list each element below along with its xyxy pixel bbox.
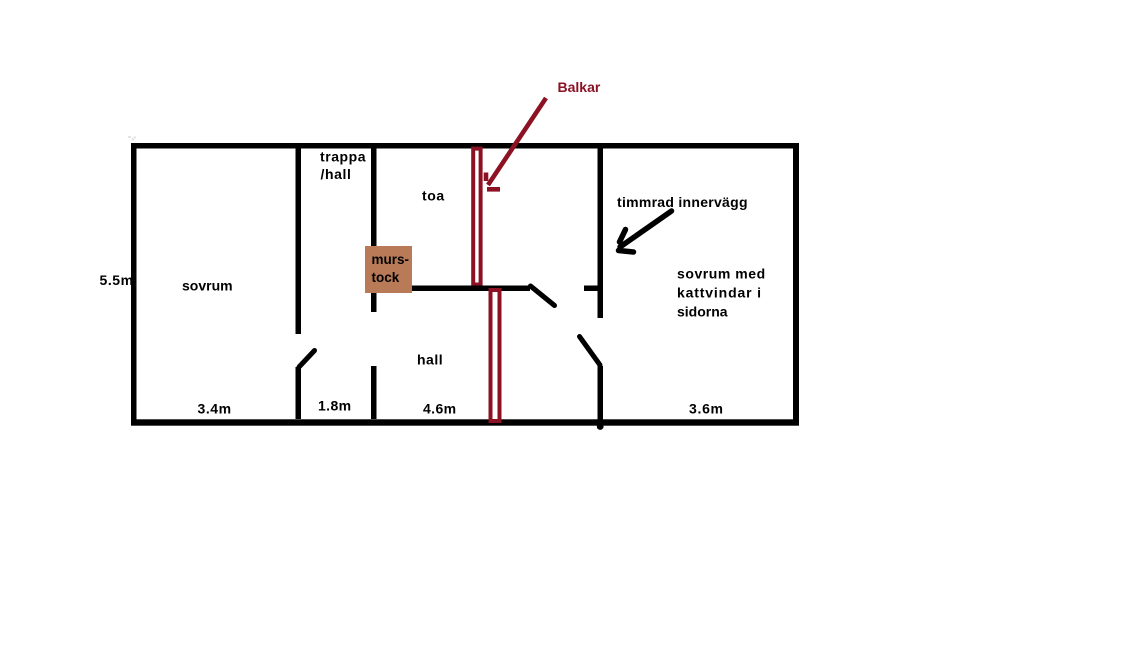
svg-text:sidorna: sidorna xyxy=(677,304,728,320)
svg-text:sovrum med: sovrum med xyxy=(677,266,766,282)
svg-text:3.4m: 3.4m xyxy=(198,401,232,417)
svg-text:5.5m: 5.5m xyxy=(100,272,134,288)
svg-text:tock: tock xyxy=(372,270,400,285)
svg-text:Balkar: Balkar xyxy=(558,79,601,95)
svg-text:murs-: murs- xyxy=(372,252,410,267)
svg-text:timmrad innervägg: timmrad innervägg xyxy=(617,194,748,210)
svg-text:/hall: /hall xyxy=(321,166,352,182)
svg-text:1.8m: 1.8m xyxy=(318,398,352,414)
svg-text:trappa: trappa xyxy=(320,149,366,165)
svg-text:hall: hall xyxy=(417,352,443,368)
svg-text:toa: toa xyxy=(422,188,445,204)
svg-text:4.6m: 4.6m xyxy=(423,401,457,417)
svg-text:3.6m: 3.6m xyxy=(689,401,724,417)
svg-text:kattvindar i: kattvindar i xyxy=(677,285,762,301)
svg-text:sovrum: sovrum xyxy=(182,278,233,294)
